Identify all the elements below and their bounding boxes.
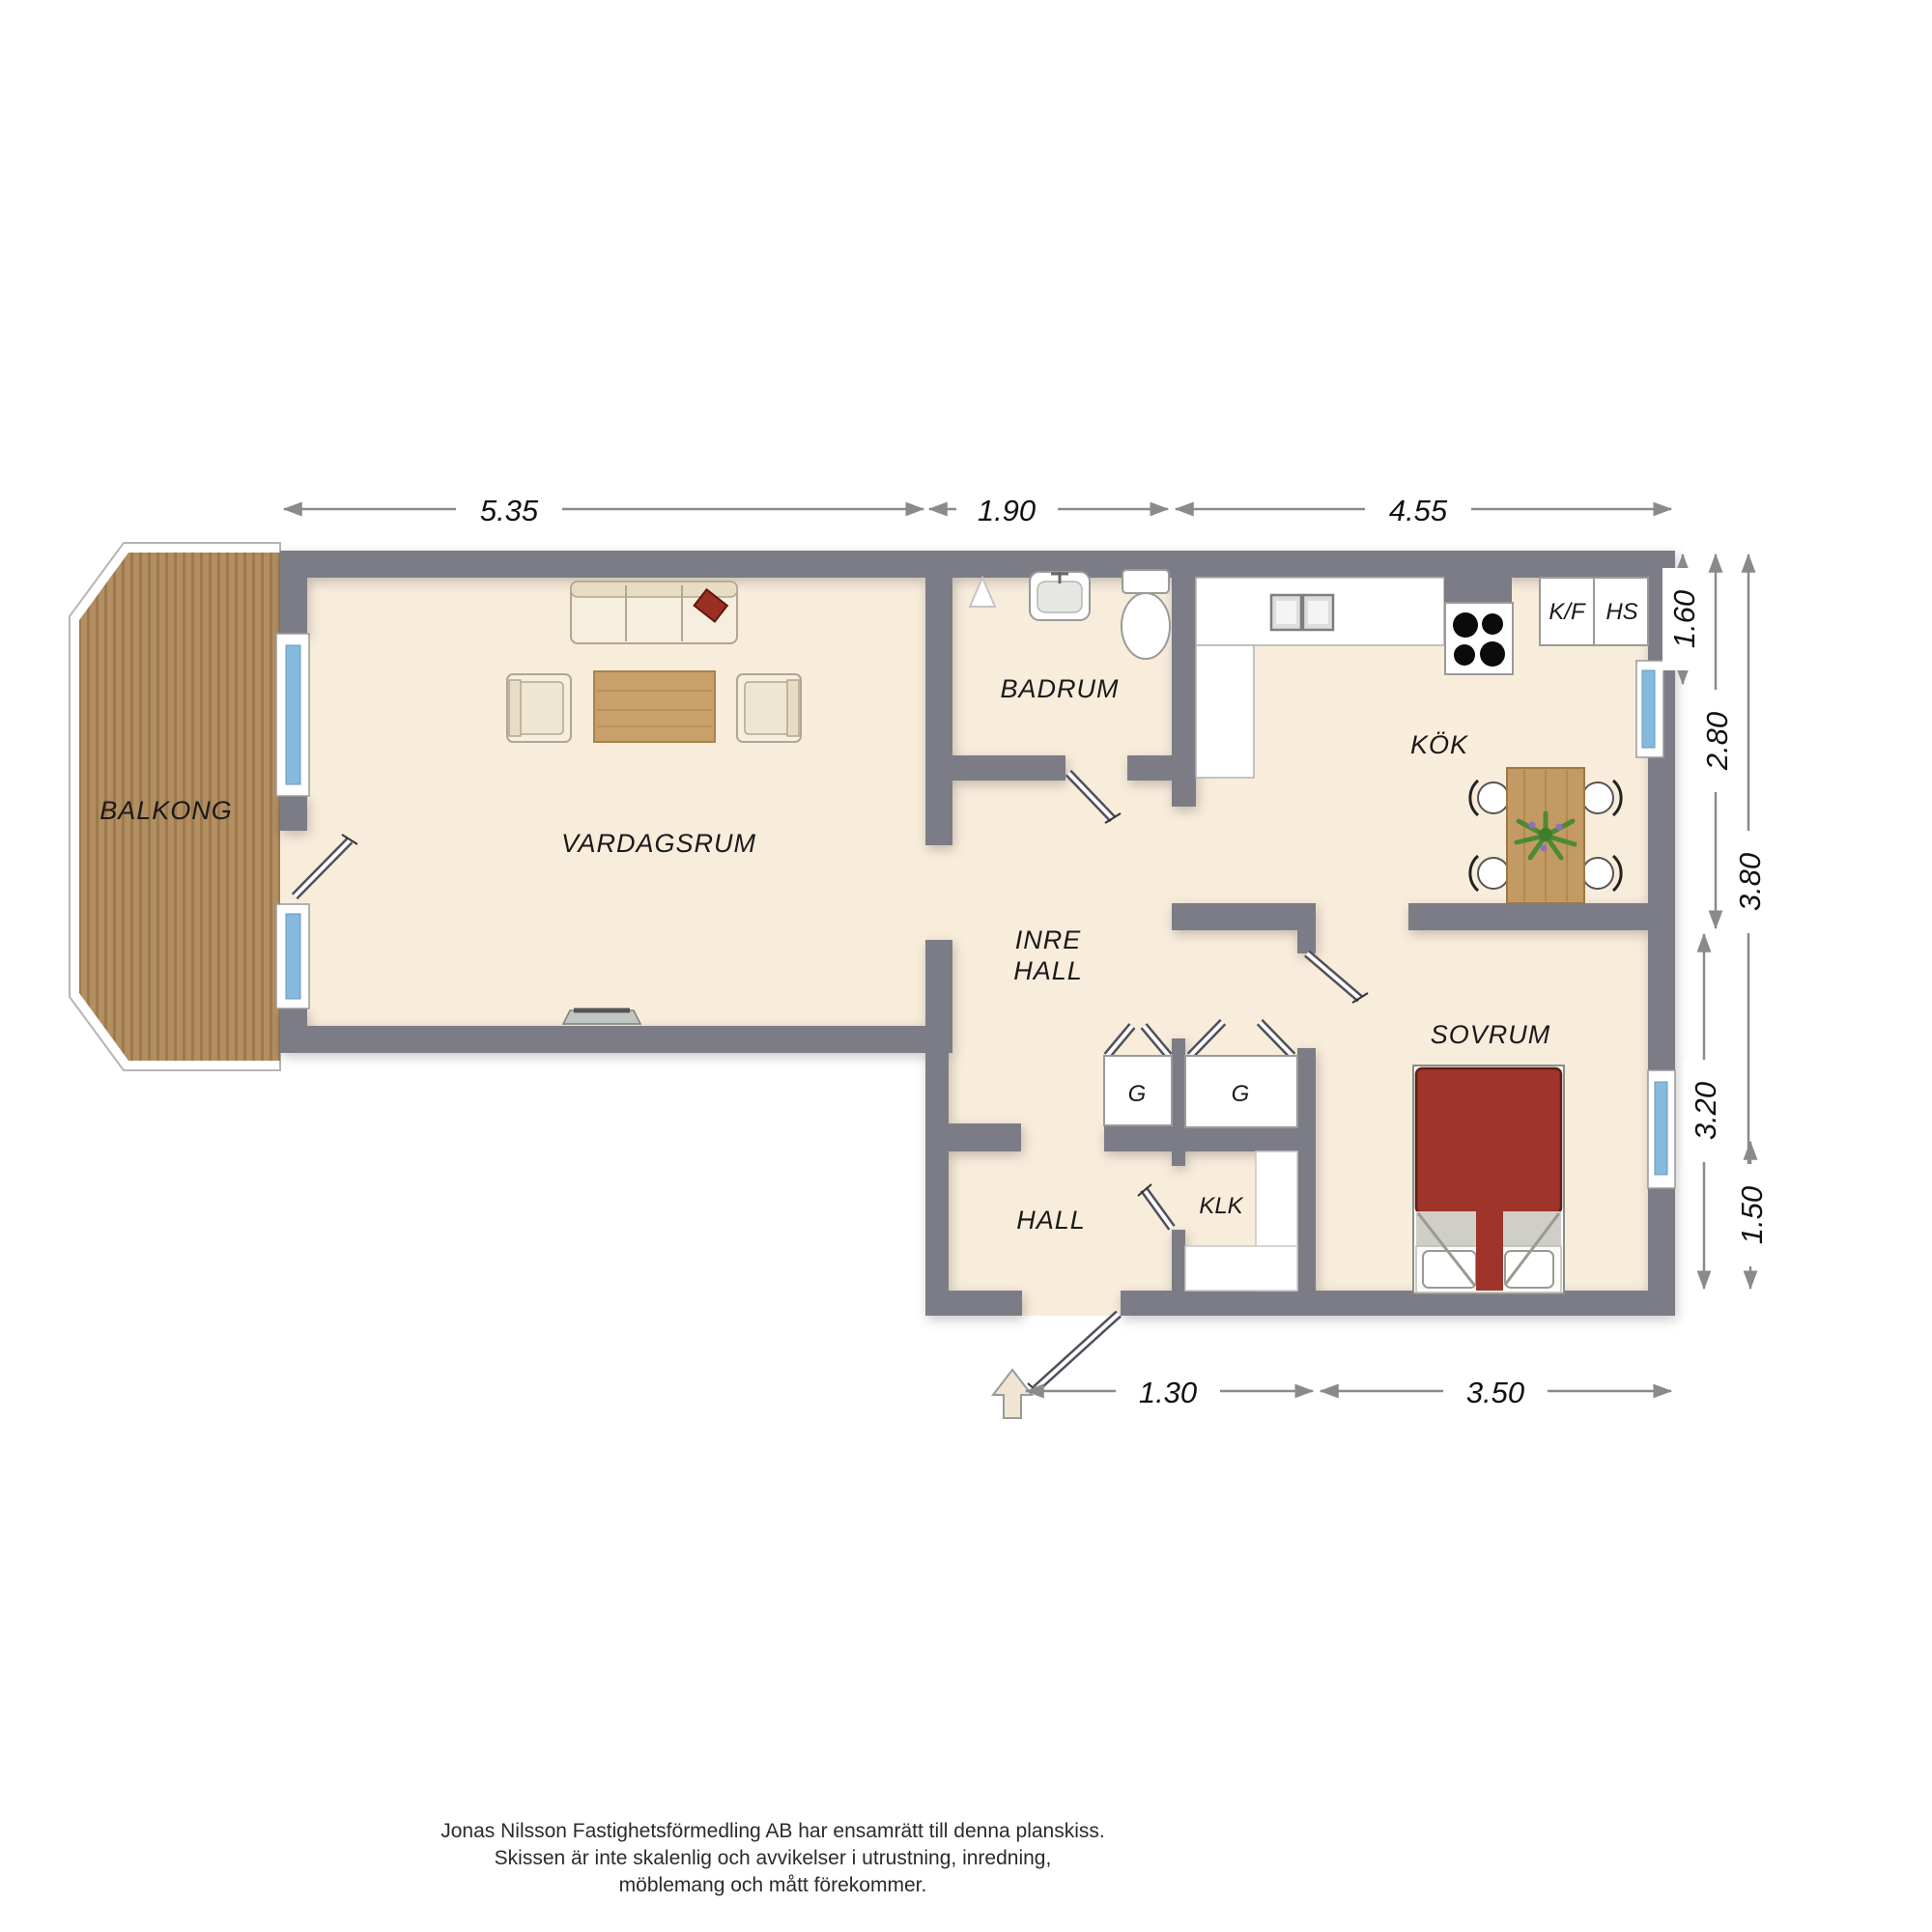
cabinet-hs-label: HS <box>1605 599 1637 625</box>
svg-text:1.50: 1.50 <box>1735 1186 1769 1244</box>
window-bedroom <box>1648 1070 1675 1188</box>
svg-text:3.80: 3.80 <box>1733 853 1767 911</box>
window-livingroom-upper <box>276 634 309 796</box>
sofa <box>571 582 737 643</box>
svg-text:1.30: 1.30 <box>1139 1376 1197 1409</box>
svg-text:4.55: 4.55 <box>1389 494 1448 527</box>
dimension-right-3: 3.80 <box>1728 554 1769 1210</box>
balcony: BALKONG <box>70 543 280 1070</box>
cabinet-kf-label: K/F <box>1548 599 1586 625</box>
sink-icon <box>1030 572 1090 620</box>
dimension-top-2: 1.90 <box>929 488 1168 528</box>
closet-g-left-label: G <box>1128 1081 1147 1107</box>
cabinet-hs: HS <box>1594 578 1648 645</box>
window-livingroom-lower <box>276 904 309 1009</box>
dimension-bottom-2: 3.50 <box>1321 1370 1671 1410</box>
dimension-bottom-1: 1.30 <box>1026 1370 1313 1410</box>
floor-plan: BALKONG <box>0 0 1932 1932</box>
dimension-right-4: 3.20 <box>1684 934 1724 1289</box>
klk-label: KLK <box>1199 1193 1243 1219</box>
floor-plan-page: BALKONG <box>0 0 1932 1932</box>
footer-line-1: Jonas Nilsson Fastighetsförmedling AB ha… <box>440 1820 1105 1842</box>
badrum-label: BADRUM <box>1000 674 1119 703</box>
tv-bench <box>563 1010 640 1024</box>
cabinet-kf: K/F <box>1540 578 1594 645</box>
armchair-right <box>737 674 801 742</box>
svg-text:3.20: 3.20 <box>1689 1082 1722 1140</box>
kok-label: KÖK <box>1410 730 1468 759</box>
dimension-right-1: 1.60 <box>1662 554 1703 684</box>
entrance-arrow-icon <box>993 1370 1032 1418</box>
footer-line-3: möblemang och mått förekommer. <box>619 1874 927 1896</box>
kitchen-sink-icon <box>1271 595 1333 630</box>
window-kitchen <box>1636 661 1663 757</box>
inre-hall-label-line1: INRE <box>1015 925 1082 954</box>
hall-label: HALL <box>1016 1206 1086 1235</box>
balcony-label: BALKONG <box>99 796 233 825</box>
toilet-icon <box>1122 570 1170 659</box>
svg-text:1.90: 1.90 <box>978 494 1036 527</box>
svg-text:5.35: 5.35 <box>480 494 539 527</box>
svg-text:2.80: 2.80 <box>1700 712 1734 771</box>
vardagsrum-label: VARDAGSRUM <box>561 829 756 858</box>
footer-line-2: Skissen är inte skalenlig och avvikelser… <box>495 1847 1052 1869</box>
stove-icon <box>1445 603 1513 674</box>
dimension-top-1: 5.35 <box>284 488 923 528</box>
svg-text:3.50: 3.50 <box>1466 1376 1524 1409</box>
footer-disclaimer: Jonas Nilsson Fastighetsförmedling AB ha… <box>440 1820 1105 1896</box>
coffee-table <box>594 671 715 742</box>
door-entrance <box>1028 1314 1119 1397</box>
dimension-right-5: 1.50 <box>1730 1142 1771 1289</box>
stove-recess <box>1444 578 1512 603</box>
bed <box>1413 1065 1564 1293</box>
dimension-top-3: 4.55 <box>1176 488 1671 528</box>
closet-g-right-label: G <box>1232 1081 1250 1107</box>
svg-text:1.60: 1.60 <box>1667 590 1701 648</box>
armchair-left <box>507 674 571 742</box>
inre-hall-label-line2: HALL <box>1013 956 1083 985</box>
sovrum-label: SOVRUM <box>1431 1020 1551 1049</box>
